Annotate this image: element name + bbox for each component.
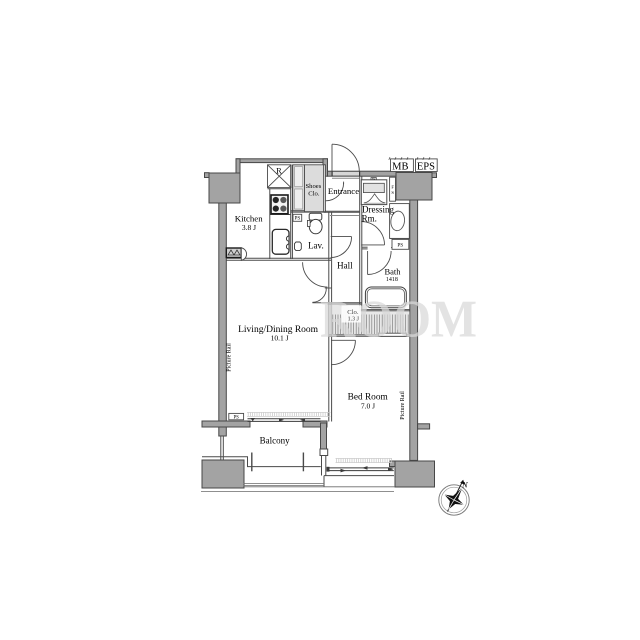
svg-text:PS: PS <box>234 416 240 421</box>
svg-text:EPS: EPS <box>417 161 435 172</box>
svg-text:Entrance: Entrance <box>328 186 359 196</box>
svg-text:Picture Rail: Picture Rail <box>400 391 406 420</box>
svg-text:PS: PS <box>397 243 403 249</box>
svg-text:PS: PS <box>295 216 301 222</box>
svg-text:3.8 J: 3.8 J <box>242 223 256 232</box>
svg-text:Shoes: Shoes <box>306 183 322 190</box>
svg-text:S: S <box>391 190 394 195</box>
svg-text:Bath: Bath <box>384 266 401 276</box>
svg-text:F: F <box>391 184 394 189</box>
svg-text:Picture Rail: Picture Rail <box>227 343 233 372</box>
svg-text:7.0 J: 7.0 J <box>361 402 375 411</box>
svg-text:Rm.: Rm. <box>362 213 377 223</box>
svg-text:1.3 J: 1.3 J <box>348 317 360 323</box>
svg-text:Clo.: Clo. <box>308 191 320 198</box>
svg-text:Balcony: Balcony <box>260 436 290 446</box>
svg-text:R: R <box>276 165 282 175</box>
svg-text:Clo.: Clo. <box>347 309 359 316</box>
svg-text:Lav.: Lav. <box>308 240 324 250</box>
svg-text:Kitchen: Kitchen <box>235 213 263 223</box>
svg-text:Hall: Hall <box>337 260 353 270</box>
svg-text:MB: MB <box>392 161 408 172</box>
svg-text:1418: 1418 <box>386 277 398 283</box>
svg-text:10.1 J: 10.1 J <box>271 334 289 343</box>
